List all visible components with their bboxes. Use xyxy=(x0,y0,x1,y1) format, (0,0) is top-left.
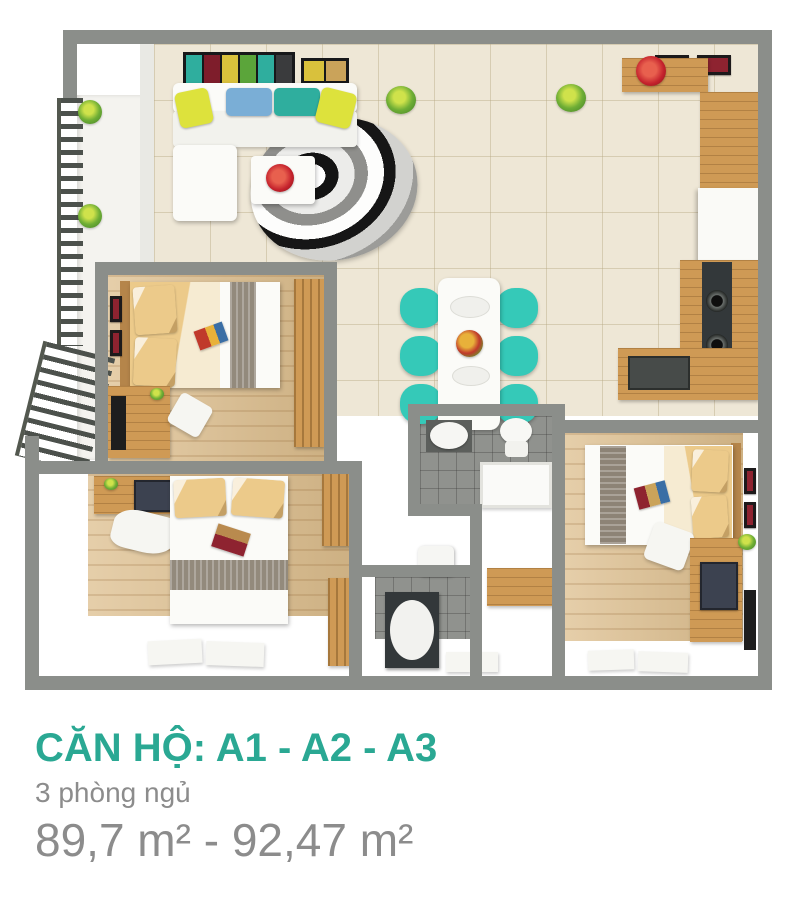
bed1-pillow xyxy=(132,285,177,336)
wall-top-left-stub xyxy=(63,30,77,98)
wall-right xyxy=(758,30,772,690)
plate-icon xyxy=(450,296,490,318)
shelf-box xyxy=(326,61,346,81)
bedroom2-cabinet xyxy=(328,578,350,666)
floor-mat xyxy=(588,649,635,671)
listing-info: CĂN HỘ: A1 - A2 - A3 3 phòng ngủ 89,7 m²… xyxy=(35,726,437,865)
bed3-runner xyxy=(600,446,626,544)
bath1-sink xyxy=(430,422,468,449)
wall-plant-icon xyxy=(556,84,586,112)
wall-art-icon xyxy=(110,296,122,322)
wall-bathroom1-top xyxy=(408,404,565,416)
plate-icon xyxy=(452,366,490,386)
bed3-pillow xyxy=(691,495,730,539)
desk-plant-icon xyxy=(104,478,118,490)
wall-bathroom1-left xyxy=(408,404,420,516)
floorplan xyxy=(0,0,800,700)
floor-mat xyxy=(638,651,689,673)
shelf-box xyxy=(222,55,238,85)
floor-mat xyxy=(446,652,470,672)
bedroom2-wardrobe xyxy=(322,474,350,546)
kitchen-flower-icon xyxy=(636,56,666,86)
flower-centerpiece-icon xyxy=(266,164,294,192)
bed1-runner xyxy=(230,282,256,388)
dining-chair xyxy=(496,288,538,328)
area-range: 89,7 m² - 92,47 m² xyxy=(35,815,437,866)
apartment-listing-card: CĂN HỘ: A1 - A2 - A3 3 phòng ngủ 89,7 m²… xyxy=(0,0,800,899)
wall-art-icon xyxy=(110,330,122,356)
shelf-box xyxy=(204,55,220,85)
shelf-box xyxy=(186,55,202,85)
wall-art-icon xyxy=(744,502,756,528)
desk-plant-icon xyxy=(738,534,756,550)
apartment-title: CĂN HỘ: A1 - A2 - A3 xyxy=(35,726,437,770)
bed2-runner xyxy=(170,560,288,590)
dining-chair xyxy=(400,336,442,376)
sofa-pillow-blue xyxy=(226,88,272,116)
entrance-shoe-cabinet xyxy=(487,568,555,606)
floor-mat xyxy=(147,639,202,666)
wall-bathroom2-right xyxy=(470,565,482,676)
bath1-toilet-base xyxy=(505,441,528,457)
burner-icon xyxy=(706,290,728,312)
wall-living-bedroom1 xyxy=(95,262,337,275)
wall-bathroom1-right xyxy=(552,404,565,676)
wall-bedroom1-left xyxy=(95,262,108,474)
desk-plant-icon xyxy=(150,388,164,400)
window-curtain xyxy=(140,44,154,262)
wall-bathroom2-top xyxy=(362,565,482,577)
wall-bedroom3-top xyxy=(552,420,758,433)
balcony-plant-icon xyxy=(78,204,102,228)
bedroom3-tv xyxy=(744,590,756,650)
bed1-pillow xyxy=(133,337,177,387)
wall-plant-icon xyxy=(386,86,416,114)
bath1-tub xyxy=(480,462,552,508)
bed3-pillow xyxy=(691,449,729,493)
kitchen-tall-cabinet xyxy=(700,92,758,188)
shelf-box xyxy=(240,55,256,85)
balcony-plant-icon xyxy=(78,100,102,124)
sofa-pillow-yellow xyxy=(174,87,215,129)
dining-chair xyxy=(400,288,442,328)
sofa-throw-teal xyxy=(274,88,320,116)
sofa-chaise xyxy=(173,145,237,221)
kitchen-sink-appliance xyxy=(628,356,690,390)
wall-bottom xyxy=(25,676,772,690)
fridge xyxy=(698,188,758,264)
bed2-pillow xyxy=(231,477,286,519)
bedroom1-wardrobe xyxy=(294,279,324,447)
wall-art-icon xyxy=(744,468,756,494)
bedroom-count: 3 phòng ngủ xyxy=(35,778,437,809)
shelf-box xyxy=(258,55,274,85)
food-bowl-icon xyxy=(456,330,483,357)
shelf-box xyxy=(304,61,324,81)
dining-chair xyxy=(496,336,538,376)
bedroom1-tv xyxy=(111,396,126,450)
bath2-sink xyxy=(390,600,434,660)
bed2-pillow xyxy=(173,478,227,519)
bedroom3-laptop xyxy=(700,562,738,610)
shelf-box xyxy=(276,55,292,85)
wall-top xyxy=(63,30,772,44)
wall-bedroom2-right xyxy=(349,461,362,676)
wall-shelf-small xyxy=(301,58,349,84)
wall-bedroom2-top xyxy=(25,461,362,474)
wall-bedroom1-right xyxy=(324,262,337,474)
floor-mat xyxy=(206,641,265,667)
